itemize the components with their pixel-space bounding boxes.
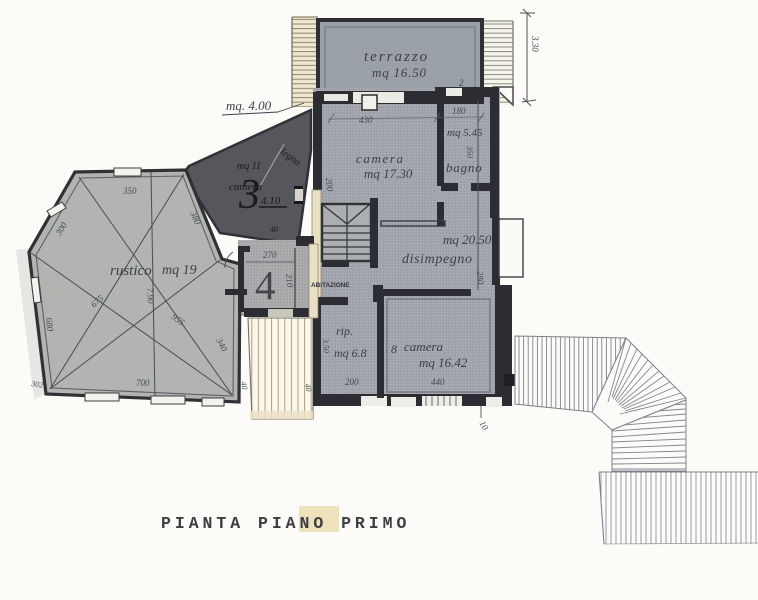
svg-text:7.90: 7.90: [145, 288, 156, 305]
svg-text:disimpegno: disimpegno: [402, 252, 473, 267]
svg-text:mq 19: mq 19: [162, 263, 197, 278]
svg-text:rip.: rip.: [336, 324, 353, 338]
svg-text:40: 40: [239, 381, 249, 390]
svg-text:350: 350: [122, 186, 137, 196]
svg-text:3: 3: [238, 172, 260, 218]
svg-text:terrazzo: terrazzo: [364, 49, 429, 65]
svg-text:3.30: 3.30: [530, 35, 540, 52]
svg-text:200: 200: [345, 377, 359, 387]
svg-text:350: 350: [465, 145, 474, 158]
svg-text:4.10: 4.10: [261, 195, 281, 207]
svg-text:40: 40: [303, 383, 313, 392]
svg-text:270: 270: [263, 250, 277, 260]
svg-text:302: 302: [30, 379, 44, 390]
svg-text:700: 700: [136, 378, 150, 388]
svg-text:rustico: rustico: [110, 263, 152, 279]
svg-text:2: 2: [459, 78, 464, 88]
svg-text:4: 4: [255, 262, 276, 308]
svg-text:bagno: bagno: [446, 160, 483, 175]
svg-text:PIANTA PIANO PRIMO: PIANTA PIANO PRIMO: [161, 514, 410, 533]
svg-text:mq 17.30: mq 17.30: [364, 166, 413, 181]
svg-text:210: 210: [284, 273, 295, 288]
svg-text:camera: camera: [356, 151, 405, 166]
svg-text:mq 11: mq 11: [237, 161, 261, 172]
svg-text:ABITAZIONE: ABITAZIONE: [311, 282, 350, 289]
svg-text:mq 16.42: mq 16.42: [419, 355, 468, 370]
svg-text:mq. 4.00: mq. 4.00: [226, 98, 272, 113]
svg-text:680: 680: [44, 317, 55, 332]
svg-text:mq 20.50: mq 20.50: [443, 232, 492, 247]
svg-text:3.50: 3.50: [321, 338, 331, 353]
svg-text:200: 200: [324, 177, 335, 192]
svg-text:8: 8: [391, 342, 397, 356]
svg-text:440: 440: [431, 377, 445, 387]
svg-text:430: 430: [359, 115, 373, 125]
svg-text:mq 5.45: mq 5.45: [447, 127, 483, 139]
svg-text:mq 6.8: mq 6.8: [334, 346, 367, 360]
svg-text:mq 16.50: mq 16.50: [372, 65, 427, 80]
svg-text:40: 40: [270, 225, 278, 234]
svg-text:camera: camera: [404, 339, 443, 354]
svg-text:280: 280: [475, 271, 486, 286]
svg-text:180: 180: [452, 106, 466, 116]
